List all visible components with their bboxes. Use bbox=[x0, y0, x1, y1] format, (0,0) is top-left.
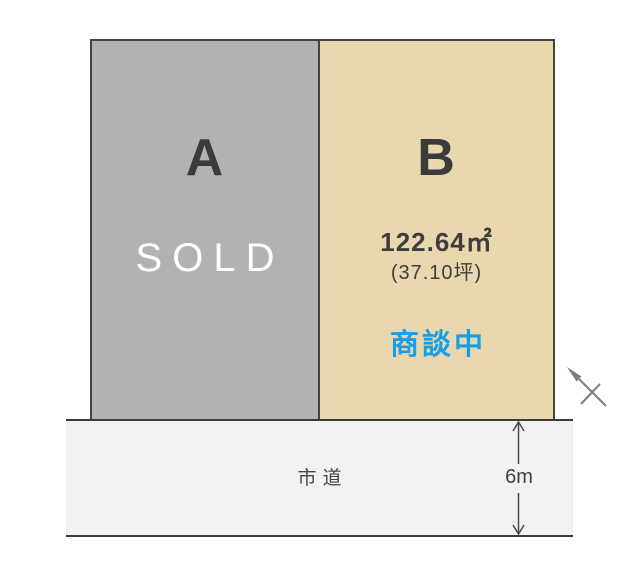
plot-b-status: 商談中 bbox=[320, 331, 553, 360]
plot-b: B 122.64㎡ (37.10坪) 商談中 bbox=[318, 39, 555, 421]
plot-b-area-m2: 122.64㎡ bbox=[320, 229, 553, 255]
road-width-label: 6m bbox=[489, 467, 549, 487]
plot-a-status-sold: SOLD bbox=[92, 238, 318, 278]
plot-b-label: B bbox=[320, 132, 553, 184]
plot-a-label: A bbox=[92, 132, 318, 184]
north-arrow-icon bbox=[567, 367, 606, 406]
land-plot-diagram: A SOLD B 122.64㎡ (37.10坪) 商談中 市道 6m bbox=[0, 0, 642, 577]
plot-a: A SOLD bbox=[90, 39, 320, 421]
plot-b-area-tsubo: (37.10坪) bbox=[320, 263, 553, 283]
